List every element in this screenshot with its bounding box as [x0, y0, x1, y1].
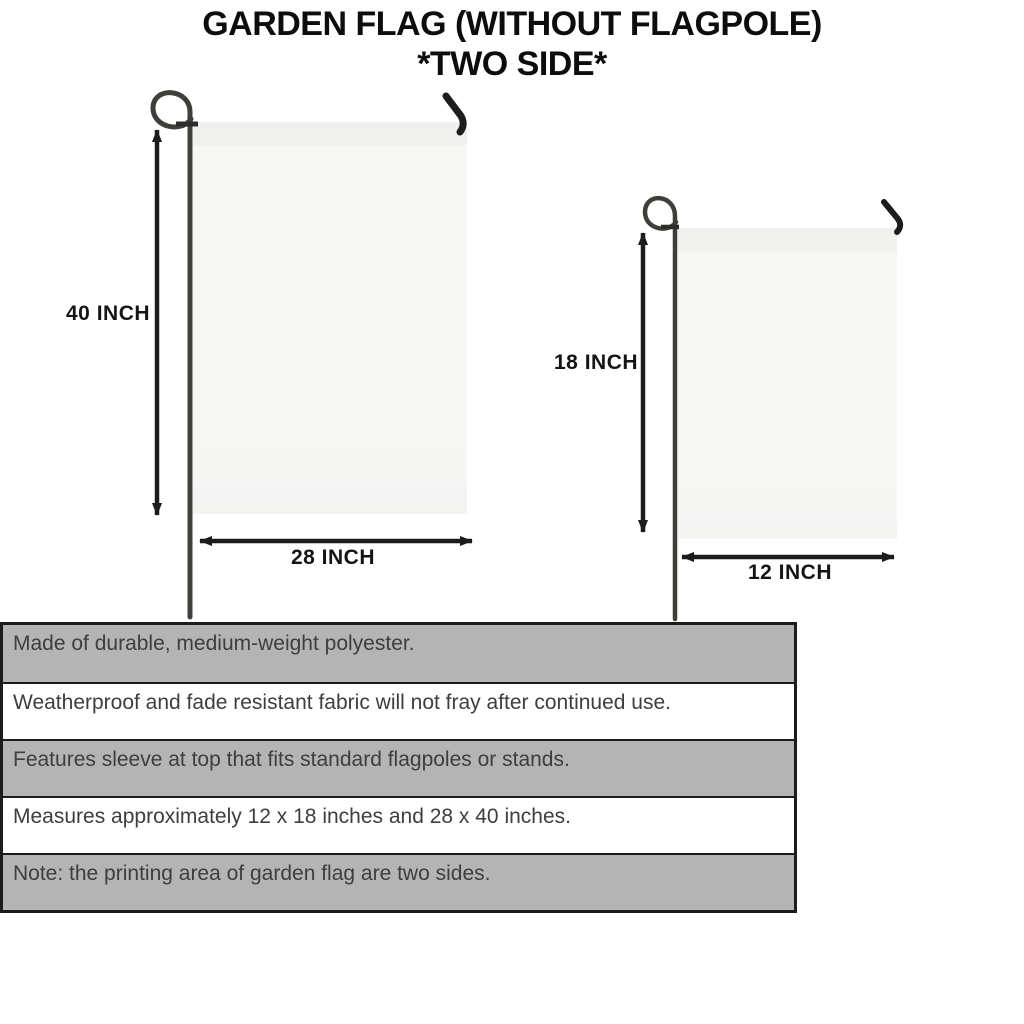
feature-row: Made of durable, medium-weight polyester… [3, 625, 794, 682]
feature-row: Features sleeve at top that fits standar… [3, 739, 794, 796]
page-title: GARDEN FLAG (WITHOUT FLAGPOLE) [0, 4, 1024, 44]
feature-row: Measures approximately 12 x 18 inches an… [3, 796, 794, 853]
garden-flag-infographic: GARDEN FLAG (WITHOUT FLAGPOLE) *TWO SIDE… [0, 0, 1024, 1024]
small-flag-width-label: 12 INCH [717, 561, 863, 585]
large-flag-width-label: 28 INCH [260, 546, 406, 570]
feature-row: Weatherproof and fade resistant fabric w… [3, 682, 794, 739]
page-subtitle: *TWO SIDE* [0, 44, 1024, 84]
features-table: Made of durable, medium-weight polyester… [0, 622, 797, 913]
large-flag-height-label: 40 INCH [66, 302, 150, 326]
large-flag-hook-icon [446, 96, 463, 132]
small-flag-hook-icon [884, 202, 900, 232]
feature-row: Note: the printing area of garden flag a… [3, 853, 794, 910]
small-flag-height-label: 18 INCH [554, 351, 638, 375]
title-block: GARDEN FLAG (WITHOUT FLAGPOLE) *TWO SIDE… [0, 4, 1024, 84]
small-flagpole-loop-icon [645, 198, 676, 619]
